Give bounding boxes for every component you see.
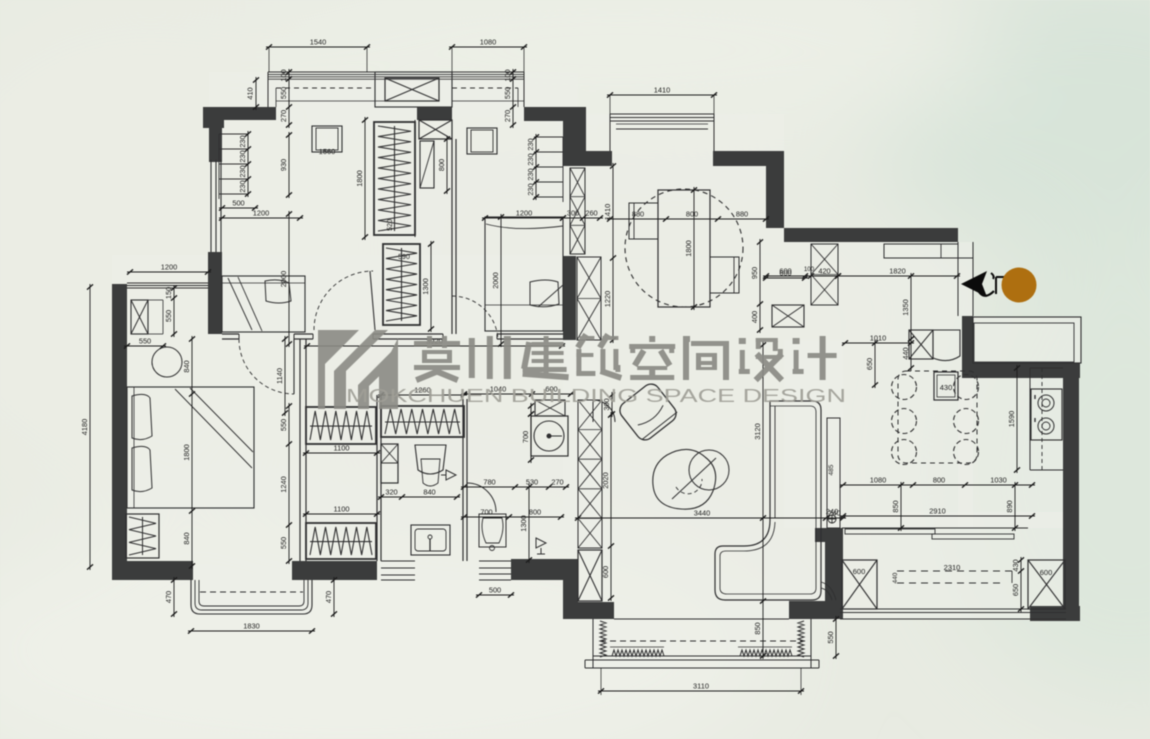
svg-text:3120: 3120 [753,423,762,439]
svg-text:2020: 2020 [601,472,610,488]
svg-text:3440: 3440 [694,509,710,518]
svg-text:1240: 1240 [279,476,288,492]
svg-text:MOKCHUEN BUILDING SPACE DESIGN: MOKCHUEN BUILDING SPACE DESIGN [346,386,846,406]
svg-text:230: 230 [238,180,247,192]
svg-text:550: 550 [164,310,173,322]
svg-text:230: 230 [238,135,247,147]
svg-text:1830: 1830 [243,622,259,631]
svg-text:700: 700 [521,431,530,443]
svg-text:230: 230 [238,150,247,162]
svg-text:470: 470 [324,591,333,603]
svg-text:300: 300 [567,209,579,218]
svg-text:800: 800 [529,508,541,517]
svg-text:1080: 1080 [870,476,886,485]
svg-text:100: 100 [503,69,512,81]
svg-text:1590: 1590 [1007,411,1016,427]
svg-text:1080: 1080 [480,38,496,47]
svg-text:400: 400 [750,311,759,323]
svg-text:230: 230 [526,153,535,165]
svg-text:600: 600 [779,267,791,276]
svg-text:2310: 2310 [944,563,961,572]
svg-text:500: 500 [489,586,501,595]
svg-text:150: 150 [164,287,173,299]
svg-text:1560: 1560 [319,147,336,156]
svg-text:2910: 2910 [929,507,945,516]
svg-text:230: 230 [238,165,247,177]
svg-text:2000: 2000 [491,272,500,288]
svg-text:840: 840 [182,532,191,544]
svg-text:1100: 1100 [334,505,350,514]
svg-text:240: 240 [828,509,840,518]
svg-text:100: 100 [804,266,815,273]
svg-text:1140: 1140 [275,368,284,384]
svg-text:1540: 1540 [310,38,326,47]
svg-text:1800: 1800 [684,240,693,256]
svg-text:1800: 1800 [182,444,191,460]
svg-text:100: 100 [279,69,288,81]
svg-text:840: 840 [182,360,191,372]
svg-text:930: 930 [279,159,288,171]
svg-text:1300: 1300 [519,515,528,531]
svg-text:410: 410 [246,87,255,99]
svg-text:470: 470 [164,591,173,603]
svg-text:800: 800 [933,476,945,485]
svg-text:550: 550 [279,87,288,99]
svg-text:440: 440 [901,347,910,359]
svg-text:320: 320 [385,488,397,497]
svg-text:550: 550 [279,419,288,431]
svg-text:840: 840 [423,488,435,497]
svg-text:260: 260 [585,209,597,218]
svg-text:650: 650 [865,358,874,370]
svg-text:1300: 1300 [421,278,430,294]
svg-text:650: 650 [1011,584,1020,596]
svg-text:1820: 1820 [889,267,905,276]
svg-text:1410: 1410 [654,86,670,95]
svg-text:420: 420 [818,267,830,276]
svg-text:270: 270 [503,110,512,122]
svg-text:440: 440 [892,572,899,583]
svg-text:4180: 4180 [80,419,89,435]
svg-text:1200: 1200 [161,263,177,272]
svg-text:520: 520 [387,219,394,231]
svg-text:880: 880 [736,210,748,219]
svg-text:880: 880 [632,210,644,219]
svg-text:550: 550 [503,87,512,99]
svg-text:270: 270 [551,478,563,487]
svg-text:850: 850 [753,622,762,634]
svg-text:2000: 2000 [279,271,288,287]
svg-text:230: 230 [526,138,535,150]
svg-text:700: 700 [480,508,492,517]
svg-text:800: 800 [437,159,446,171]
svg-text:600: 600 [853,567,866,576]
svg-text:1200: 1200 [253,209,269,218]
svg-text:1220: 1220 [603,291,612,307]
svg-text:850: 850 [891,500,900,512]
svg-text:1200: 1200 [516,209,532,218]
svg-text:550: 550 [826,631,835,643]
svg-text:1800: 1800 [355,170,364,186]
svg-text:1030: 1030 [990,476,1006,485]
svg-text:1100: 1100 [334,444,350,453]
svg-text:230: 230 [526,168,535,180]
svg-text:950: 950 [750,267,759,279]
svg-text:600: 600 [601,566,610,578]
svg-text:500: 500 [232,199,244,208]
svg-text:3110: 3110 [693,682,709,691]
svg-text:550: 550 [139,337,151,346]
svg-text:430: 430 [1011,559,1020,571]
svg-text:550: 550 [279,537,288,549]
svg-text:270: 270 [279,110,288,122]
svg-text:430: 430 [940,383,953,392]
svg-text:780: 780 [483,478,495,487]
svg-text:485: 485 [828,464,835,475]
svg-text:800: 800 [686,210,698,219]
svg-text:1350: 1350 [901,299,910,315]
svg-text:600: 600 [1040,568,1053,577]
svg-text:890: 890 [1005,500,1014,512]
svg-text:590: 590 [398,254,410,261]
svg-text:230: 230 [526,183,535,195]
